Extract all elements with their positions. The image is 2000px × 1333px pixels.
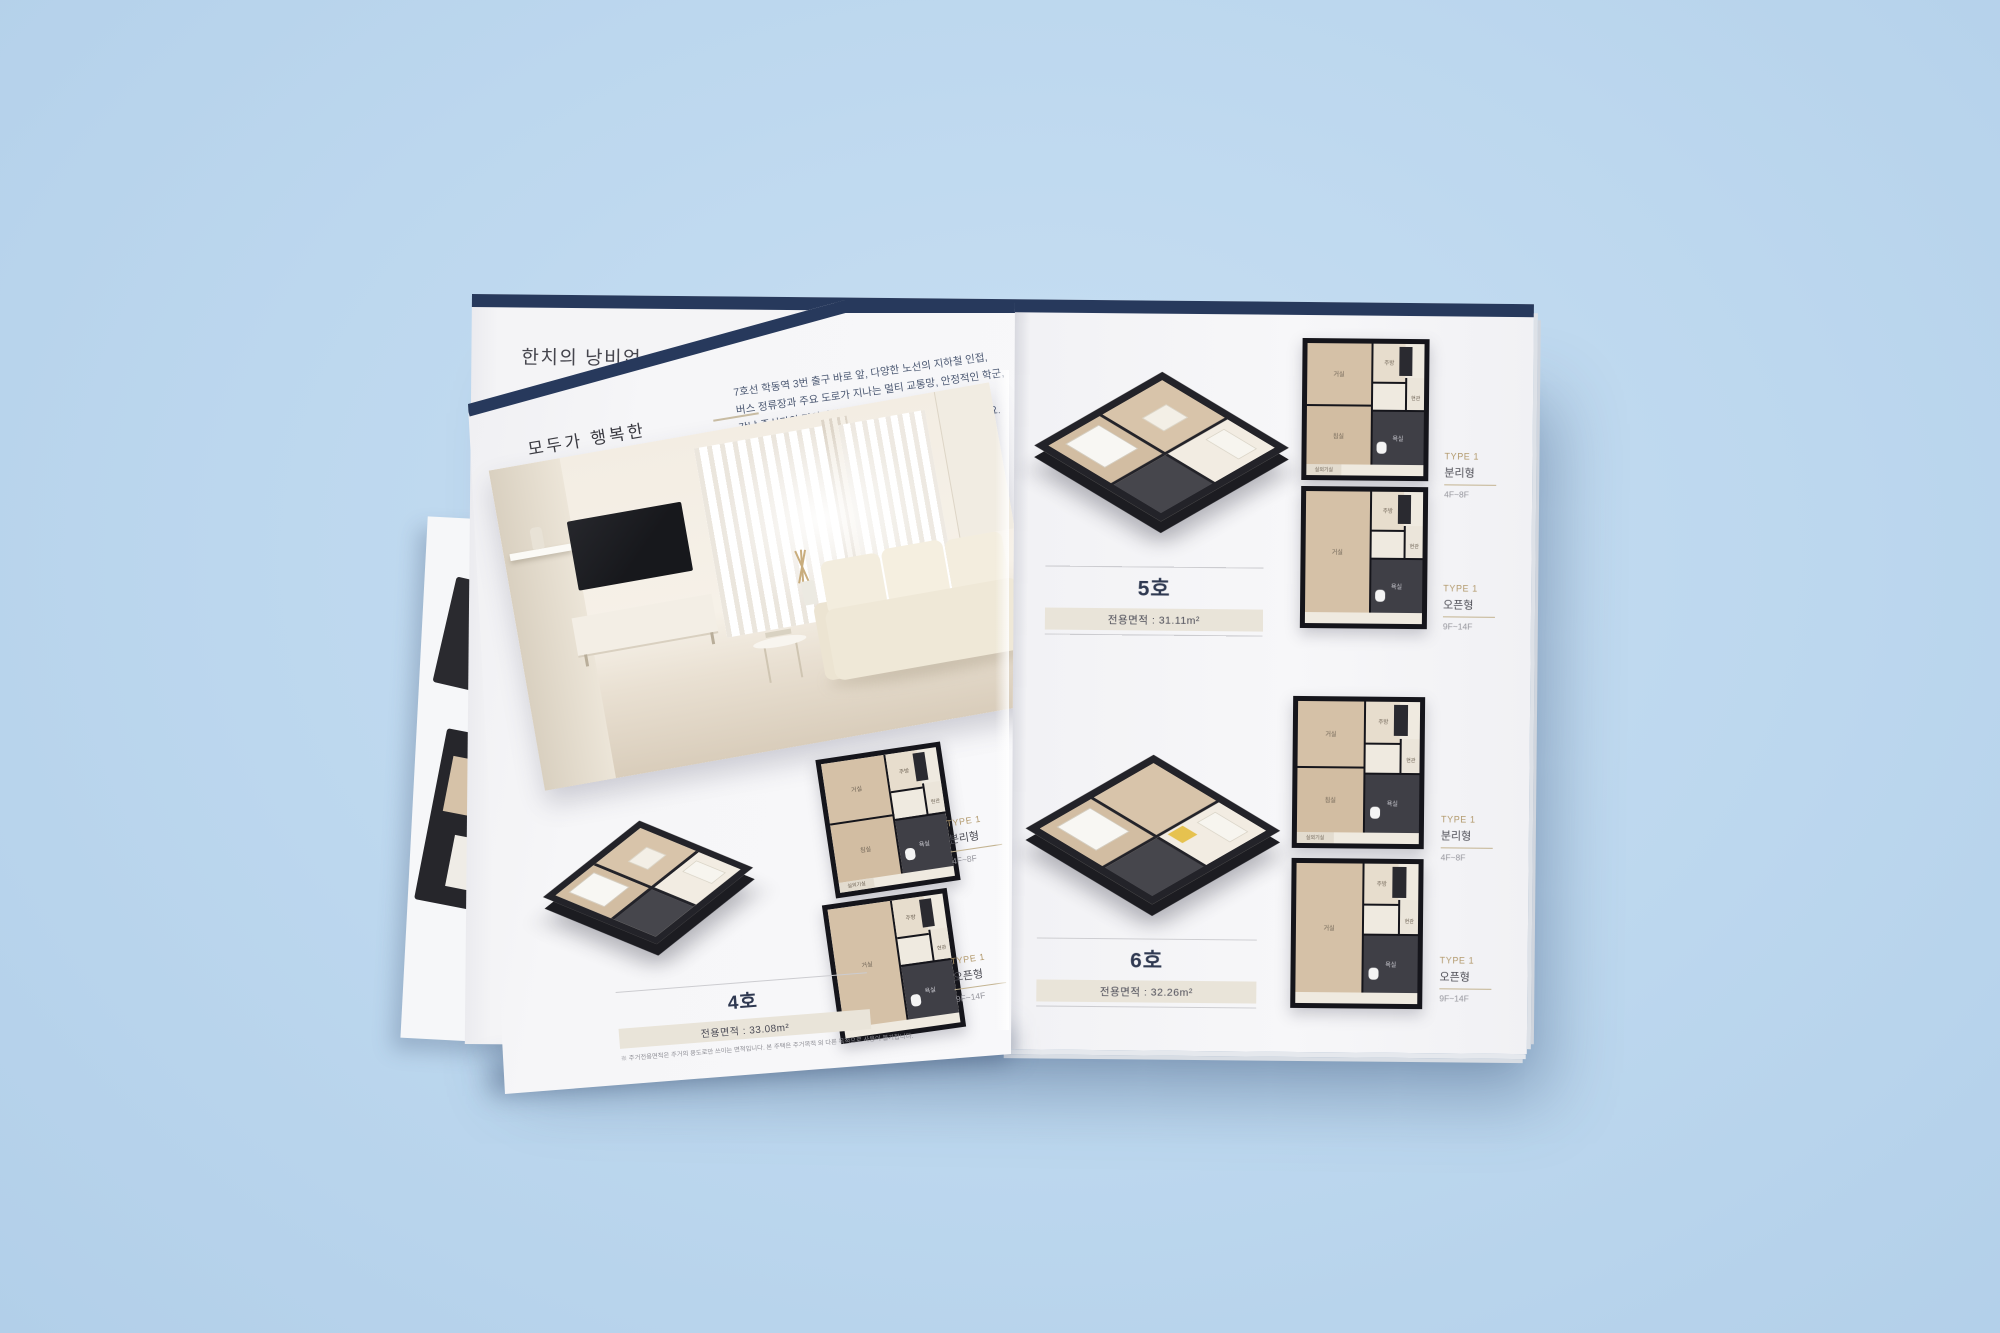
unit5-2d-plan-open: 거실 주방 현관 욕실 <box>1300 486 1428 629</box>
room-bath-label: 욕실 <box>1391 582 1402 591</box>
unit6-heading-block: 6호 전용면적 : 32.26m² <box>1036 937 1257 1008</box>
room-bath: 욕실 <box>895 811 954 873</box>
unit5-2d-plan-separated: 거실 침실 주방 현관 욕실 실외기실 <box>1301 338 1429 481</box>
unit5-isometric-body <box>1034 372 1289 522</box>
unit6-area-bar: 전용면적 : 32.26m² <box>1036 979 1256 1003</box>
room-bath: 욕실 <box>1364 934 1418 993</box>
type-rule <box>1439 988 1491 989</box>
room-bedroom-label: 침실 <box>1325 796 1336 805</box>
room-living-label: 거실 <box>1324 923 1335 932</box>
unit6-2d-plan-separated: 거실 침실 주방 현관 욕실 실외기실 <box>1292 696 1425 849</box>
room-bath-label: 욕실 <box>1387 799 1398 808</box>
rule <box>1036 1005 1256 1008</box>
toilet <box>904 848 916 861</box>
room-bedroom: 침실 <box>830 814 903 883</box>
unit6-type1-label: TYPE 1 분리형 4F~8F <box>1441 814 1503 863</box>
type-plan-name: 분리형 <box>1441 827 1503 844</box>
room-bath-label: 욕실 <box>1392 434 1403 443</box>
turning-page: 7호선 학동역 3번 출구 바로 앞, 다양한 노선의 지하철 인접, 버스 정… <box>455 290 1021 1172</box>
rule <box>1045 634 1263 637</box>
kitchen-appliance <box>919 898 936 928</box>
unit5-isometric-plan <box>1045 322 1257 572</box>
unit5-type2-label: TYPE 1 오픈형 9F~14F <box>1443 583 1505 632</box>
toilet <box>1377 441 1387 453</box>
type-tag: TYPE 1 <box>1444 451 1506 462</box>
room-bedroom-label: 침실 <box>859 844 871 855</box>
unit5-type1-label: TYPE 1 분리형 4F~8F <box>1444 451 1506 500</box>
type-floors: 4F~8F <box>1444 489 1506 500</box>
unit5-area-bar: 전용면적 : 31.11m² <box>1045 608 1263 632</box>
unit4-isometric-body <box>543 821 753 944</box>
room-living: 거실 <box>1305 491 1372 613</box>
brochure-mockup-scene: 한치의 낭비없 ※ 주거전용면적은 주거의 용도 거실 <box>0 0 2000 1333</box>
room-bath-label: 욕실 <box>918 838 930 849</box>
room-bath-label: 욕실 <box>1385 960 1396 969</box>
unit4-2d-plan-separated: 거실 침실 주방 현관 욕실 실외기실 <box>815 741 960 898</box>
room-living-label: 거실 <box>1325 729 1336 738</box>
toilet <box>1369 967 1379 979</box>
type-floors: 9F~14F <box>1443 621 1505 632</box>
toilet <box>910 994 922 1007</box>
room-kitchen-label: 주방 <box>1377 880 1387 888</box>
type-floors: 4F~8F <box>1441 852 1503 863</box>
kitchen-appliance <box>1393 867 1407 898</box>
unit5-heading-block: 5호 전용면적 : 31.11m² <box>1045 566 1264 637</box>
type-plan-name: 오픈형 <box>1439 968 1501 985</box>
room-living-label: 거실 <box>861 959 873 969</box>
type-rule <box>1441 847 1493 848</box>
type-tag: TYPE 1 <box>1440 955 1502 966</box>
room-entry-label: 현관 <box>1411 395 1420 402</box>
room-bath: 욕실 <box>1372 410 1424 466</box>
room-kitchen-label: 주방 <box>1383 507 1393 515</box>
room-entry-label: 현관 <box>1405 918 1414 925</box>
room-entry-label: 현관 <box>1406 757 1415 764</box>
kitchen-appliance <box>1394 705 1408 736</box>
room-util-label: 실외기실 <box>847 880 866 890</box>
room-bedroom: 침실 <box>1297 766 1366 832</box>
kitchen-appliance <box>1398 495 1411 524</box>
type-rule <box>1444 484 1496 485</box>
room-util: 실외기실 <box>1297 832 1334 844</box>
right-page: 거실 침실 주방 현관 욕실 실외기실 TYPE 1 분리형 4F~8F 거 <box>996 299 1534 1054</box>
unit6-name: 6호 <box>1036 938 1256 981</box>
unit6-isometric-body <box>1025 754 1280 904</box>
unit5-name: 5호 <box>1045 567 1263 610</box>
room-bath-label: 욕실 <box>924 984 936 994</box>
room-living: 거실 <box>1295 863 1365 992</box>
room-living: 거실 <box>821 755 894 824</box>
toilet <box>1375 589 1385 601</box>
photo-tv <box>567 502 693 591</box>
type-tag: TYPE 1 <box>1441 814 1503 825</box>
page-curl-highlight <box>995 370 1009 1030</box>
type-plan-name: 분리형 <box>1444 464 1506 481</box>
room-bedroom-label: 침실 <box>1333 431 1344 440</box>
room-bedroom: 침실 <box>1306 404 1372 465</box>
room-living: 거실 <box>1298 701 1367 767</box>
room-kitchen-label: 주방 <box>1384 359 1394 367</box>
unit6-2d-plan-open: 거실 주방 현관 욕실 <box>1290 858 1423 1009</box>
room-kitchen-label: 주방 <box>905 912 916 921</box>
type-plan-name: 오픈형 <box>1443 596 1505 613</box>
room-bath: 욕실 <box>1370 558 1422 614</box>
room-kitchen-label: 주방 <box>898 766 909 775</box>
room-entry-label: 현관 <box>1410 543 1419 550</box>
room-living-label: 거실 <box>850 784 862 795</box>
room-living-label: 거실 <box>1332 547 1343 556</box>
room-bath: 욕실 <box>1365 773 1419 833</box>
turning-page-navy-band <box>835 300 1017 313</box>
room-living: 거실 <box>1307 343 1373 404</box>
type-floors: 9F~14F <box>1439 993 1501 1004</box>
unit6-type2-label: TYPE 1 오픈형 9F~14F <box>1439 955 1501 1004</box>
room-entry-label: 현관 <box>930 797 940 805</box>
room-living-label: 거실 <box>1333 369 1344 378</box>
toilet <box>1370 807 1380 819</box>
room-entry-label: 현관 <box>937 943 947 951</box>
room-bath: 욕실 <box>901 958 959 1019</box>
room-kitchen-label: 주방 <box>1378 718 1388 726</box>
type-rule <box>1443 616 1495 617</box>
type-tag: TYPE 1 <box>1443 583 1505 594</box>
room-util: 실외기실 <box>1306 464 1341 475</box>
room-util-label: 실외기실 <box>1315 466 1333 473</box>
kitchen-appliance <box>1400 347 1413 376</box>
unit6-isometric-plan <box>1029 691 1257 968</box>
room-util-label: 실외기실 <box>1306 834 1324 841</box>
